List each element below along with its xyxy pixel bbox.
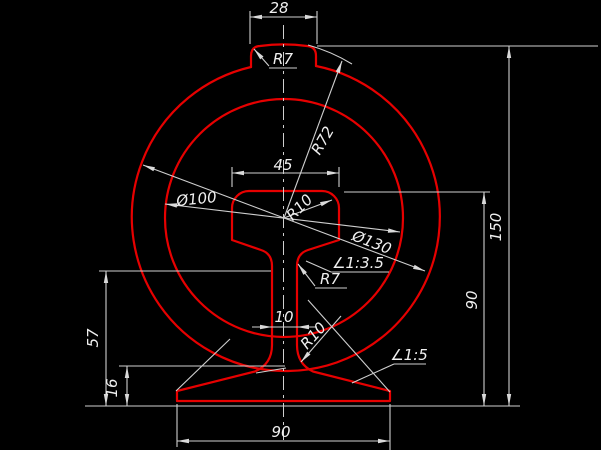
arrow [320, 200, 332, 206]
arrow [298, 264, 307, 275]
cad-drawing: 28 R7 R72 45 Ø100 R10 Ø130 ∠1:3.5 R7 10 … [0, 0, 601, 450]
arrow [125, 394, 129, 406]
arrow [104, 271, 108, 283]
dim-text-r10-foot: R10 [297, 319, 330, 353]
dim-text-90-right: 90 [463, 290, 481, 309]
dim-text-r72: R72 [307, 123, 337, 158]
dim-text-45: 45 [273, 156, 292, 174]
dim-text-90-bottom: 90 [271, 423, 290, 441]
dim-text-d100: Ø100 [174, 188, 217, 210]
arrow [305, 15, 317, 19]
dim-57-lines [99, 271, 271, 406]
arrow [413, 265, 425, 271]
dim-text-r7-top: R7 [273, 50, 293, 68]
arrow [378, 439, 390, 443]
dim-text-slope-15: ∠1:5 [390, 346, 428, 364]
arrow [336, 61, 342, 73]
arrow [507, 46, 511, 58]
dimension-lines [85, 11, 598, 450]
dim-text-150: 150 [487, 213, 505, 242]
cad-canvas[interactable]: 28 R7 R72 45 Ø100 R10 Ø130 ∠1:3.5 R7 10 … [0, 0, 601, 450]
arrow [327, 171, 339, 175]
dim-text-28: 28 [269, 0, 288, 17]
dim-text-16: 16 [103, 378, 121, 397]
r72-construction-arc [308, 45, 352, 64]
dim-text-r7-web: R7 [320, 270, 340, 288]
arrow [232, 171, 244, 175]
dim-text-57: 57 [84, 328, 102, 348]
arrow [125, 366, 129, 378]
arrow [507, 394, 511, 406]
slope-15-leader [352, 364, 426, 383]
dimension-texts: 28 R7 R72 45 Ø100 R10 Ø130 ∠1:3.5 R7 10 … [84, 0, 505, 441]
arrow [482, 394, 486, 406]
arrow [260, 325, 272, 329]
arrow [177, 439, 189, 443]
arrow [250, 15, 262, 19]
arrow [482, 192, 486, 204]
dim-text-10: 10 [274, 308, 293, 326]
construction-diagonal-right [308, 300, 390, 392]
arrow [143, 165, 155, 171]
